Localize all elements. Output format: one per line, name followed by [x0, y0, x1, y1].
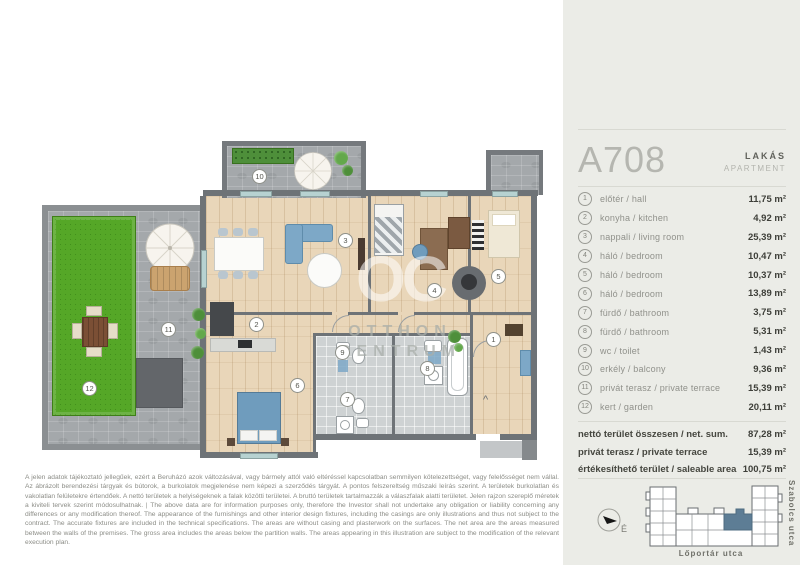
- office-chair: [461, 274, 477, 290]
- dining-chair: [218, 271, 228, 279]
- room-row: 11privát terasz / private terrace15,39 m…: [578, 379, 786, 398]
- room-area: 25,39 m²: [748, 232, 786, 243]
- chair-bedroom4: [412, 244, 428, 260]
- room-list: 1előtér / hall11,75 m² 2konyha / kitchen…: [578, 190, 786, 417]
- disclaimer-text: A jelen adatok tájékoztató jellegűek, ez…: [25, 473, 559, 547]
- entrance-marker: ^: [483, 394, 488, 406]
- unit-type: LAKÁS APARTMENT: [724, 139, 786, 173]
- room-row: 7fürdő / bathroom3,75 m²: [578, 303, 786, 322]
- room-number: 12: [578, 400, 592, 414]
- window: [201, 250, 207, 288]
- room-row: 4háló / bedroom10,47 m²: [578, 247, 786, 266]
- unit-type-en: APARTMENT: [724, 164, 786, 173]
- terrace-plant: [195, 328, 206, 339]
- floorplan-page: ^ OC OTTHON CENTRUM 1 2 3 4 5 6 7 8 9 10…: [0, 0, 800, 565]
- room-row: 9wc / toilet1,43 m²: [578, 341, 786, 360]
- total-value: 15,39 m²: [748, 447, 786, 458]
- room-number: 1: [578, 192, 592, 206]
- room-area: 13,89 m²: [748, 288, 786, 299]
- total-label: nettó terület összesen / net. sum.: [578, 429, 728, 440]
- balcony-plant: [342, 165, 353, 176]
- room-area: 9,36 m²: [753, 364, 786, 375]
- dining-chair: [233, 271, 243, 279]
- total-value: 87,28 m²: [748, 429, 786, 440]
- totals: nettó terület összesen / net. sum.87,28 …: [578, 426, 786, 479]
- room-area: 10,47 m²: [748, 251, 786, 262]
- room-badge-9: 9: [335, 345, 350, 360]
- room-badge-5: 5: [491, 269, 506, 284]
- street-label-bottom: Lőportár utca: [646, 549, 776, 558]
- room-row: 6háló / bedroom13,89 m²: [578, 284, 786, 303]
- room-area: 10,37 m²: [748, 270, 786, 281]
- room-label: fürdő / bathroom: [600, 308, 669, 318]
- hall-cabinet: [505, 324, 523, 336]
- terrace-plant: [191, 346, 204, 359]
- room-label: nappali / living room: [600, 232, 684, 242]
- room-label: erkély / balcony: [600, 364, 666, 374]
- wall-bath: [392, 334, 395, 434]
- wall-bath: [470, 312, 473, 434]
- coffee-table: [307, 253, 342, 288]
- room-label: kert / garden: [600, 402, 653, 412]
- hall-plant: [448, 330, 461, 343]
- room-number: 10: [578, 362, 592, 376]
- total-row: nettó terület összesen / net. sum.87,28 …: [578, 426, 786, 444]
- garden-chair: [86, 306, 102, 316]
- room-row: 10erkély / balcony9,36 m²: [578, 360, 786, 379]
- highlighted-unit: [724, 509, 752, 530]
- window: [240, 453, 278, 459]
- room-number: 7: [578, 306, 592, 320]
- total-label: értékesíthető terület / saleable area: [578, 464, 736, 475]
- north-label: É: [621, 524, 627, 534]
- room-area: 1,43 m²: [753, 345, 786, 356]
- room-badge-11: 11: [161, 322, 176, 337]
- room-badge-4: 4: [427, 283, 442, 298]
- room-row: 12kert / garden20,11 m²: [578, 398, 786, 417]
- wall-right: [531, 190, 537, 440]
- wc-sink: [356, 418, 369, 428]
- room-area: 11,75 m²: [749, 194, 787, 205]
- terrace-lounger: [150, 266, 190, 291]
- room-badge-6: 6: [290, 378, 305, 393]
- total-row: értékesíthető terület / saleable area100…: [578, 461, 786, 479]
- room-number: 6: [578, 287, 592, 301]
- unit-title: A708: [578, 139, 666, 181]
- sink: [424, 340, 442, 352]
- dining-chair: [248, 228, 258, 236]
- bath-mat: [338, 360, 348, 372]
- room-area: 5,31 m²: [753, 326, 786, 337]
- bed6-pillow: [240, 430, 258, 441]
- room-number: 11: [578, 381, 592, 395]
- garden-chair: [86, 347, 102, 357]
- striped-rug: [472, 220, 484, 250]
- site-plan: [636, 484, 786, 548]
- divider: [578, 478, 786, 479]
- terrace-doormat: [136, 358, 183, 408]
- toilet: [352, 348, 365, 364]
- room-label: wc / toilet: [600, 346, 640, 356]
- room-label: háló / bedroom: [600, 251, 663, 261]
- compass-icon: [596, 507, 624, 535]
- room-area: 20,11 m²: [749, 402, 787, 413]
- room-badge-12: 12: [82, 381, 97, 396]
- room-badge-3: 3: [338, 233, 353, 248]
- room-label: háló / bedroom: [600, 289, 663, 299]
- divider: [578, 421, 786, 422]
- room-number: 5: [578, 268, 592, 282]
- room-row: 8fürdő / bathroom5,31 m²: [578, 322, 786, 341]
- window: [492, 191, 518, 197]
- window: [300, 191, 330, 197]
- room-row: 2konyha / kitchen4,92 m²: [578, 209, 786, 228]
- balcony-planter: [232, 148, 294, 164]
- balcony-parasol: [293, 151, 333, 191]
- neighbour-terrace: [486, 150, 543, 195]
- desk-bedroom5: [448, 217, 470, 249]
- room-label: konyha / kitchen: [600, 213, 668, 223]
- wall-corridor: [203, 312, 534, 315]
- washer-drum: [340, 420, 350, 430]
- sofa-chaise: [285, 224, 303, 264]
- tv-unit: [358, 238, 365, 270]
- dining-chair: [218, 228, 228, 236]
- window: [420, 191, 448, 197]
- room-badge-8: 8: [420, 361, 435, 376]
- room-label: előtér / hall: [600, 194, 647, 204]
- hall-bench: [520, 350, 531, 376]
- room-number: 2: [578, 211, 592, 225]
- dining-table: [214, 237, 264, 271]
- room-badge-2: 2: [249, 317, 264, 332]
- room-label: háló / bedroom: [600, 270, 663, 280]
- room-number: 8: [578, 325, 592, 339]
- room-number: 4: [578, 249, 592, 263]
- dining-chair: [233, 228, 243, 236]
- room-row: 5háló / bedroom10,37 m²: [578, 266, 786, 285]
- kitchen-counter: [210, 302, 234, 336]
- room-number: 3: [578, 230, 592, 244]
- terrace-plant: [192, 308, 205, 321]
- sidebar: A708 LAKÁS APARTMENT 1előtér / hall11,75…: [563, 0, 800, 565]
- wall-bottom-mid: [315, 434, 537, 440]
- street-label-right: Szabolcs utca: [782, 468, 796, 558]
- room-area: 15,39 m²: [748, 383, 786, 394]
- door-gap: [476, 434, 500, 440]
- total-label: privát terasz / private terrace: [578, 447, 707, 458]
- wall-bath: [313, 334, 316, 452]
- bed4-duvet: [375, 217, 402, 253]
- room-badge-7: 7: [340, 392, 355, 407]
- room-number: 9: [578, 344, 592, 358]
- daybed-pillow: [492, 214, 516, 226]
- wall-stub: [522, 440, 537, 460]
- room-row: 1előtér / hall11,75 m²: [578, 190, 786, 209]
- garden-chair: [108, 323, 118, 339]
- wall-int: [368, 196, 371, 312]
- hall-plant: [454, 343, 463, 352]
- nightstand: [227, 438, 235, 446]
- window: [240, 191, 272, 197]
- room-label: privát terasz / private terrace: [600, 383, 720, 393]
- total-value: 100,75 m²: [743, 464, 786, 475]
- room-label: fürdő / bathroom: [600, 327, 669, 337]
- garden-table: [82, 317, 108, 347]
- room-badge-10: 10: [252, 169, 267, 184]
- room-badge-1: 1: [486, 332, 501, 347]
- room-area: 4,92 m²: [753, 213, 786, 224]
- unit-type-hu: LAKÁS: [724, 151, 786, 161]
- balcony-plant: [334, 151, 348, 165]
- room-row: 3nappali / living room25,39 m²: [578, 228, 786, 247]
- nightstand: [281, 438, 289, 446]
- bed6-pillow: [259, 430, 277, 441]
- divider: [578, 186, 786, 187]
- dining-chair: [248, 271, 258, 279]
- kitchen-cooktop: [238, 340, 252, 348]
- wall-left: [200, 196, 206, 458]
- total-row: privát terasz / private terrace15,39 m²: [578, 444, 786, 462]
- divider: [578, 129, 786, 130]
- room-area: 3,75 m²: [753, 307, 786, 318]
- garden-chair: [72, 323, 82, 339]
